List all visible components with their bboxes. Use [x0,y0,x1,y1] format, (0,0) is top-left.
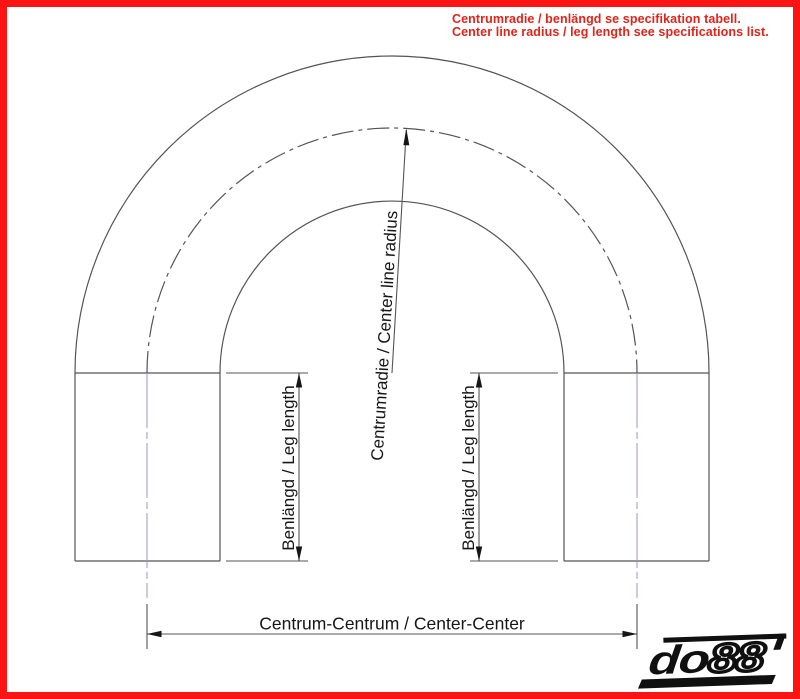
radius-dimension-label: Centrumradie / Center line radius [368,210,402,461]
notice-line-1: Centrumradie / benlängd se specifikation… [452,13,769,26]
logo-text: do88 [647,637,766,681]
logo-text-digits: 88 [707,635,766,681]
pipe-bend-diagram: Centrumradie / Center line radius Benlän… [0,0,800,699]
leg-length-label-right: Benlängd / Leg length [459,385,478,550]
left-leg-length-dimension: Benlängd / Leg length [226,373,308,561]
specification-notice: Centrumradie / benlängd se specifikation… [452,13,769,39]
center-center-left-arrowhead-icon [147,631,162,637]
center-center-dimension: Centrum-Centrum / Center-Center [147,604,637,649]
notice-line-2: Center line radius / leg length see spec… [452,26,769,39]
center-center-right-arrowhead-icon [623,631,638,637]
radius-dimension: Centrumradie / Center line radius [368,129,410,462]
right-leg-dimension-lines [470,373,558,561]
leg-length-label-left: Benlängd / Leg length [279,385,298,550]
drawing-canvas: Centrumradie / Center line radius Benlän… [0,0,800,699]
center-center-label: Centrum-Centrum / Center-Center [259,614,525,634]
right-leg-length-dimension: Benlängd / Leg length [459,373,558,561]
do88-logo: do88 [637,619,791,694]
radius-arrowhead-icon [403,129,409,146]
